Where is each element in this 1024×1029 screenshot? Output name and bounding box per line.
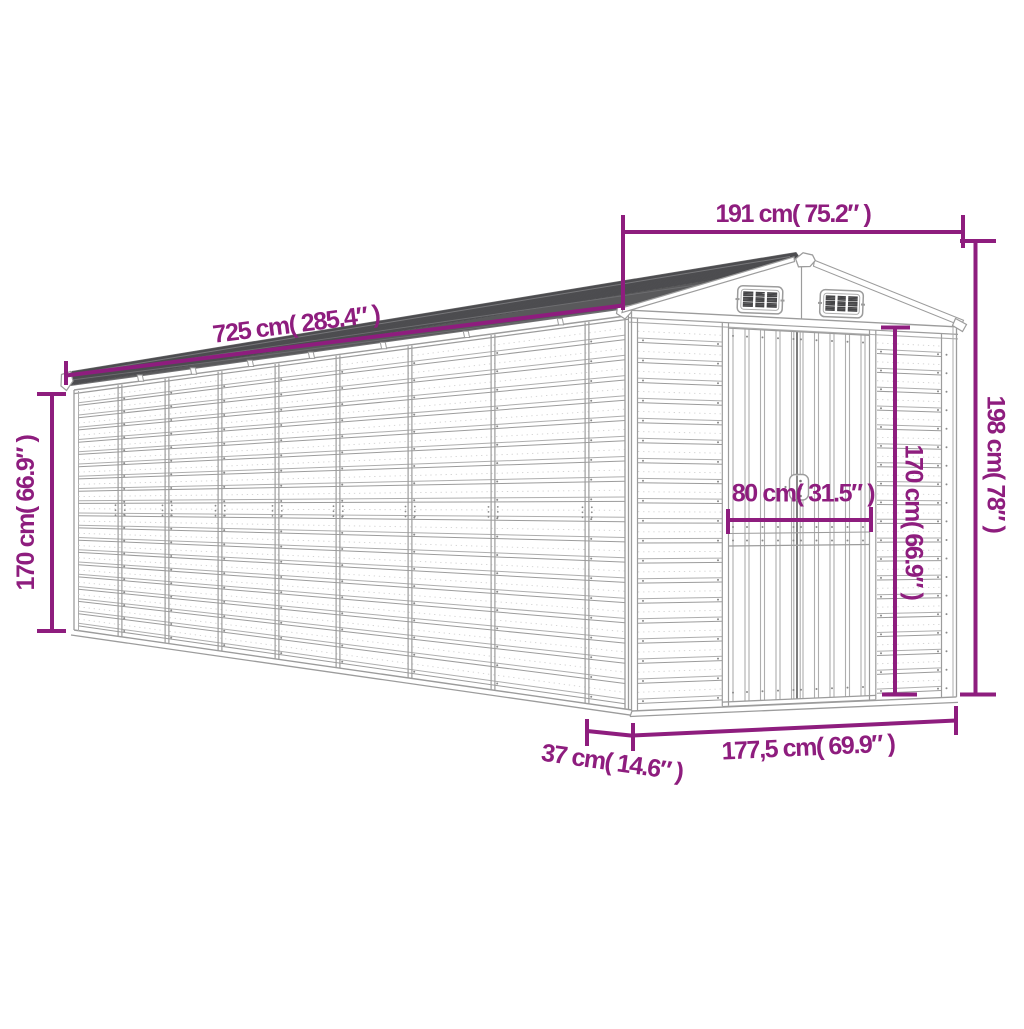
svg-text:170 cm( 66.9″ ): 170 cm( 66.9″ ) [12,434,40,590]
svg-text:191 cm( 75.2″ ): 191 cm( 75.2″ ) [716,200,872,228]
svg-text:198 cm( 78″ ): 198 cm( 78″ ) [982,396,1010,534]
svg-text:170 cm( 66.9″ ): 170 cm( 66.9″ ) [900,445,928,601]
svg-text:80 cm( 31.5″ ): 80 cm( 31.5″ ) [732,480,876,508]
